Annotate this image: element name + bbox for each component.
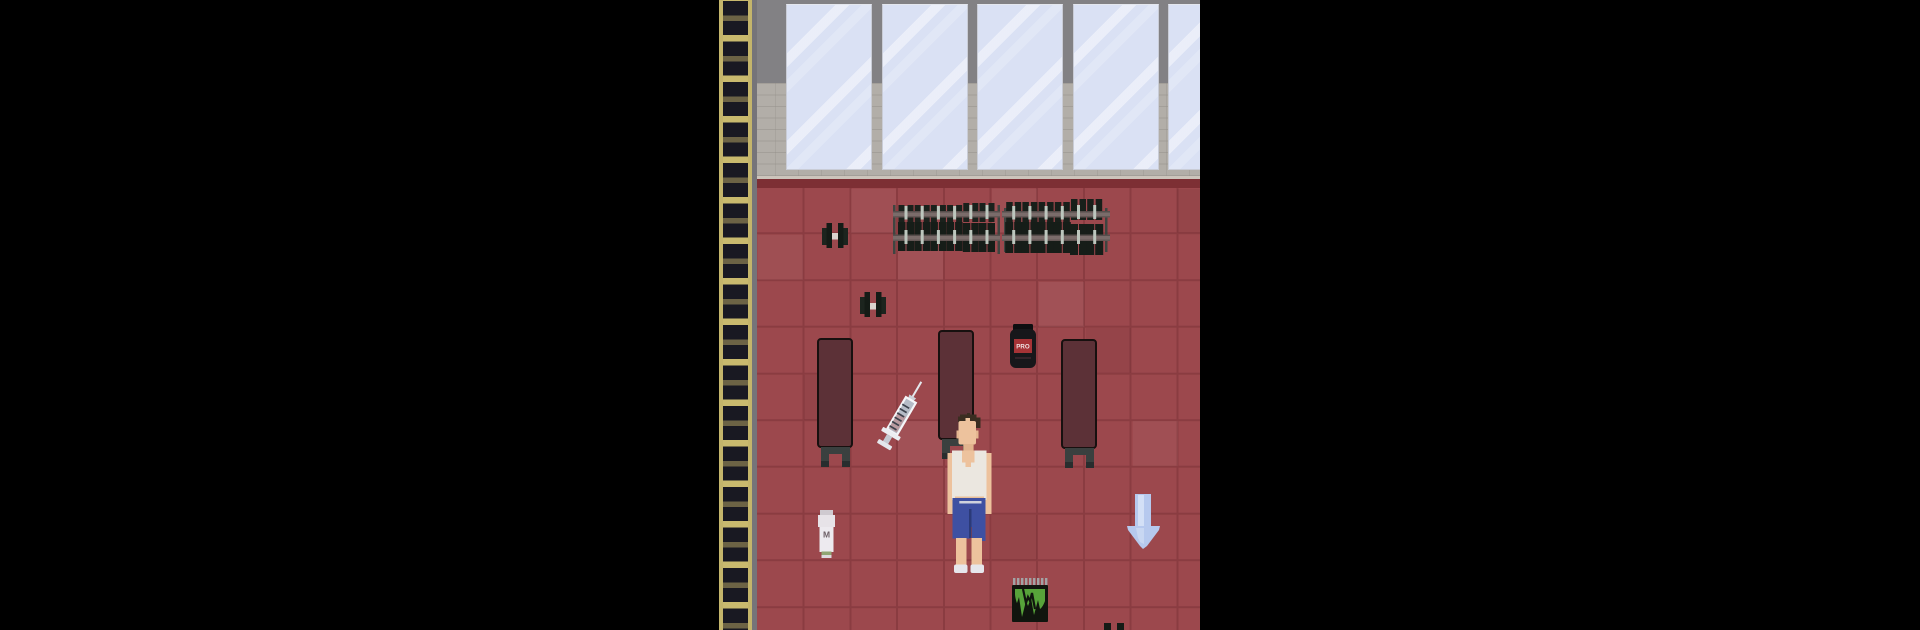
svg-text:PRO: PRO: [1016, 344, 1030, 351]
svg-text:M: M: [823, 530, 830, 540]
